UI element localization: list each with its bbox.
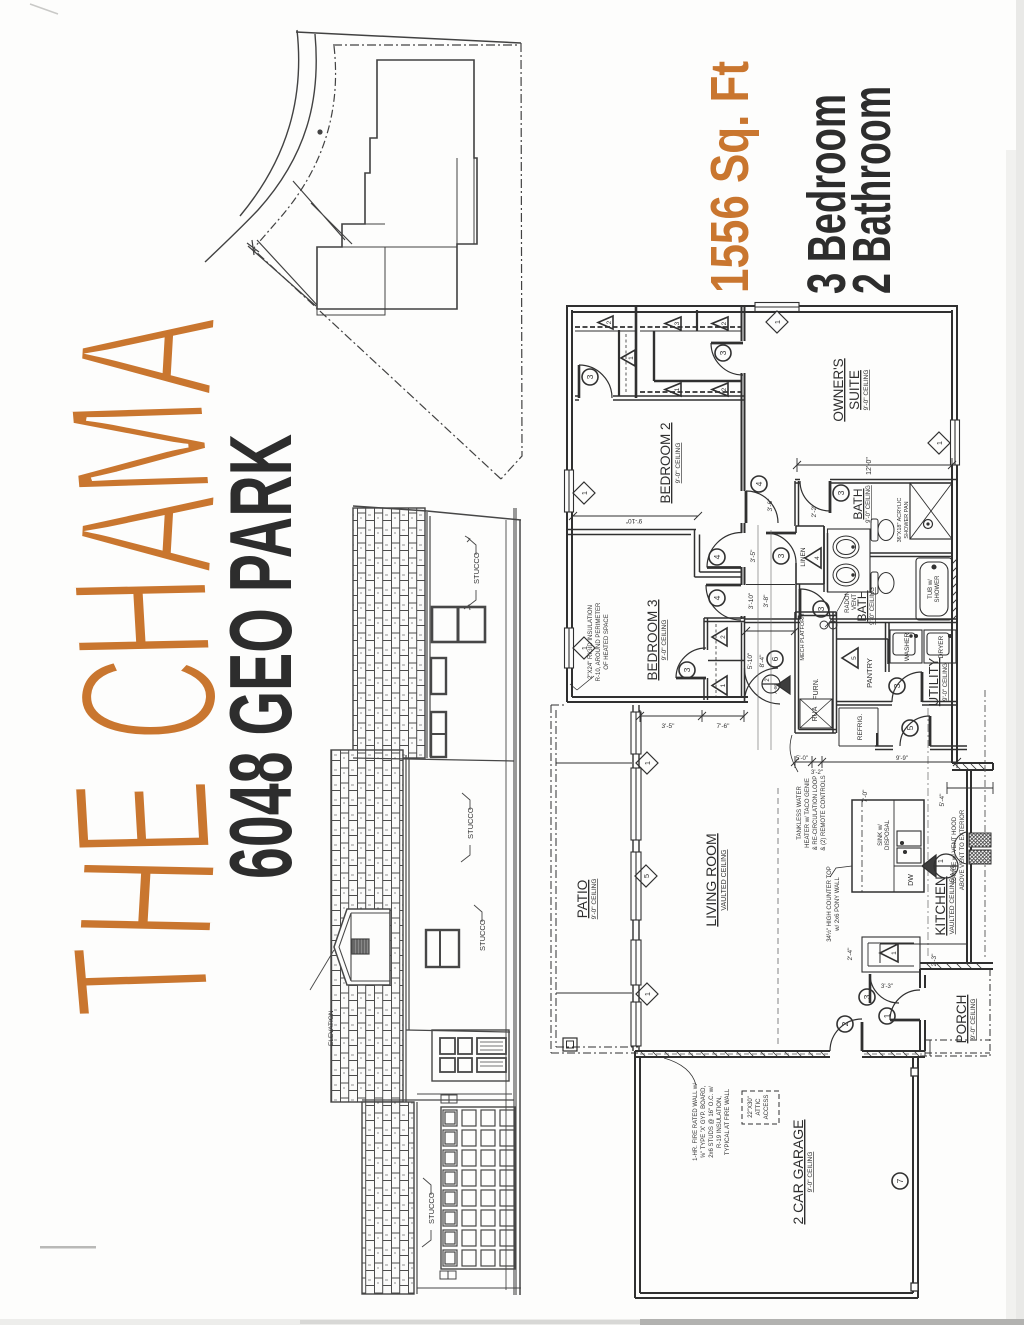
svg-text:ATTIC: ATTIC <box>756 1098 762 1116</box>
svg-text:34½" HIGH COUNTER TOP: 34½" HIGH COUNTER TOP <box>826 866 833 942</box>
svg-text:LIVING ROOM: LIVING ROOM <box>703 833 719 926</box>
svg-text:3'-5": 3'-5" <box>750 549 757 563</box>
svg-text:UTILITY: UTILITY <box>926 657 941 706</box>
svg-text:6048 GEO PARK: 6048 GEO PARK <box>211 434 310 879</box>
svg-text:12'-0": 12'-0" <box>866 457 873 475</box>
svg-text:2'-3": 2'-3" <box>931 953 938 967</box>
svg-text:PORCH: PORCH <box>954 995 969 1044</box>
svg-text:DW: DW <box>908 874 915 886</box>
svg-text:OF HEATED SPACE: OF HEATED SPACE <box>604 614 610 669</box>
svg-text:9'-0" CEILING: 9'-0" CEILING <box>863 370 870 411</box>
svg-text:STUCCO: STUCCO <box>466 807 475 839</box>
svg-text:9'-0" CEILING: 9'-0" CEILING <box>866 485 872 523</box>
svg-text:8'-4": 8'-4" <box>759 654 766 668</box>
svg-text:TUB w/: TUB w/ <box>928 579 934 599</box>
svg-text:2: 2 <box>606 320 613 324</box>
svg-text:5: 5 <box>851 656 858 660</box>
svg-text:PATIO: PATIO <box>575 880 590 919</box>
svg-text:3: 3 <box>816 606 826 611</box>
svg-text:KITCHEN: KITCHEN <box>933 876 948 935</box>
svg-text:2'-2": 2'-2" <box>811 504 818 518</box>
svg-text:9'-0" CEILING: 9'-0" CEILING <box>807 1152 814 1193</box>
svg-text:2 CAR GARAGE: 2 CAR GARAGE <box>790 1119 806 1224</box>
svg-text:9'-0" CEILING: 9'-0" CEILING <box>970 999 977 1040</box>
svg-text:3: 3 <box>836 490 846 495</box>
svg-text:2'-4": 2'-4" <box>847 947 854 961</box>
svg-text:STUCCO: STUCCO <box>478 919 487 951</box>
svg-text:BEDROOM 2: BEDROOM 2 <box>658 422 673 503</box>
svg-text:HEATER w/ TACO GENIE: HEATER w/ TACO GENIE <box>805 778 811 848</box>
svg-text:9'-9": 9'-9" <box>896 756 908 762</box>
svg-text:R-10, AROUND PERIMETER: R-10, AROUND PERIMETER <box>596 602 602 681</box>
svg-text:9'-10": 9'-10" <box>625 517 642 524</box>
svg-text:2"X24" RIGID INSULATION: 2"X24" RIGID INSULATION <box>588 605 594 679</box>
svg-text:REFRIG.: REFRIG. <box>857 714 864 741</box>
svg-text:1556 Sq. Ft: 1556 Sq. Ft <box>700 61 760 293</box>
svg-text:VAULTED CEILING: VAULTED CEILING <box>721 849 728 910</box>
svg-text:3'-8": 3'-8" <box>763 594 770 608</box>
svg-text:1-HR. FIRE RATED WALL w/: 1-HR. FIRE RATED WALL w/ <box>693 1083 699 1161</box>
svg-text:FURN.: FURN. <box>813 678 820 699</box>
svg-text:ACCESS: ACCESS <box>764 1095 770 1120</box>
svg-text:VENT: VENT <box>852 594 858 610</box>
svg-text:4: 4 <box>814 556 821 560</box>
svg-text:R-19 INSULATION,: R-19 INSULATION, <box>717 1096 723 1148</box>
svg-text:5'-10": 5'-10" <box>747 652 754 669</box>
svg-text:4: 4 <box>712 595 722 600</box>
svg-text:9'-0" CEILING: 9'-0" CEILING <box>661 620 668 661</box>
svg-text:3: 3 <box>674 321 681 325</box>
svg-text:3'-5": 3'-5" <box>662 723 676 730</box>
svg-text:RANGE w/ VENT HOOD: RANGE w/ VENT HOOD <box>952 816 958 883</box>
svg-text:7: 7 <box>895 1178 905 1183</box>
svg-text:& (2) REMOTE CONTROLS: & (2) REMOTE CONTROLS <box>821 775 827 850</box>
svg-text:DISPOSAL: DISPOSAL <box>885 819 891 850</box>
svg-text:4: 4 <box>754 481 764 486</box>
svg-text:3: 3 <box>862 994 872 999</box>
svg-text:3'-6": 3'-6" <box>767 498 774 512</box>
svg-text:TYPICAL AT FIRE WALL: TYPICAL AT FIRE WALL <box>725 1088 731 1155</box>
svg-text:1: 1 <box>643 992 652 996</box>
svg-text:4: 4 <box>712 554 722 559</box>
svg-text:ELEVATION: ELEVATION <box>328 1010 335 1046</box>
svg-text:BATH: BATH <box>851 488 865 519</box>
svg-text:1: 1 <box>720 683 727 687</box>
svg-text:1: 1 <box>938 859 945 863</box>
svg-text:22"X30": 22"X30" <box>748 1096 754 1118</box>
svg-text:2x6 STUDS @ 16" O.C. w/: 2x6 STUDS @ 16" O.C. w/ <box>709 1086 715 1158</box>
svg-text:1: 1 <box>628 356 635 360</box>
svg-text:5'-4": 5'-4" <box>939 793 946 807</box>
svg-text:SINK w/: SINK w/ <box>878 824 884 846</box>
svg-text:1: 1 <box>674 387 681 391</box>
svg-text:9'-0" CEILING: 9'-0" CEILING <box>675 443 682 484</box>
svg-text:3: 3 <box>776 553 786 558</box>
svg-text:SUITE: SUITE <box>847 370 862 410</box>
svg-text:BEDROOM 3: BEDROOM 3 <box>645 599 660 680</box>
svg-text:5: 5 <box>642 874 651 878</box>
svg-text:1: 1 <box>891 951 898 955</box>
svg-text:STUCCO: STUCCO <box>427 1192 436 1224</box>
svg-text:5: 5 <box>905 725 915 730</box>
svg-text:A-06: A-06 <box>773 684 778 694</box>
svg-text:w/ 2x6 PONY WALL: w/ 2x6 PONY WALL <box>835 876 841 931</box>
svg-text:OWNER'S: OWNER'S <box>831 358 846 421</box>
svg-text:2: 2 <box>840 1021 850 1026</box>
svg-text:3'-2": 3'-2" <box>811 770 823 776</box>
svg-text:STUCCO: STUCCO <box>472 552 481 584</box>
svg-text:3'-10": 3'-10" <box>748 592 755 609</box>
svg-text:& RE-CIRCULATION LOOP: & RE-CIRCULATION LOOP <box>813 776 819 851</box>
svg-text:1: 1 <box>773 320 782 324</box>
svg-text:1: 1 <box>643 761 652 765</box>
svg-text:SHOWER: SHOWER <box>935 575 941 603</box>
svg-text:9'-0" CEILING: 9'-0" CEILING <box>591 879 598 920</box>
svg-text:2: 2 <box>721 387 728 391</box>
svg-text:1: 1 <box>882 1013 892 1018</box>
svg-text:1: 1 <box>935 441 944 445</box>
svg-text:2: 2 <box>720 635 727 639</box>
svg-text:3: 3 <box>682 667 692 672</box>
svg-text:3: 3 <box>718 350 728 355</box>
svg-text:3: 3 <box>892 683 902 688</box>
svg-text:SHOWER PAN: SHOWER PAN <box>904 501 910 538</box>
svg-text:2: 2 <box>721 321 728 325</box>
svg-text:6: 6 <box>770 656 780 661</box>
svg-text:TANKLESS WATER: TANKLESS WATER <box>797 786 803 840</box>
svg-text:1: 1 <box>580 491 589 495</box>
svg-text:5'-0": 5'-0" <box>796 756 808 762</box>
svg-text:9'-0" CEILING: 9'-0" CEILING <box>943 663 949 701</box>
svg-text:VAULTED CEILING: VAULTED CEILING <box>949 878 956 935</box>
svg-text:PANTRY: PANTRY <box>865 658 874 688</box>
svg-text:ABOVE VENT TO EXTERIOR: ABOVE VENT TO EXTERIOR <box>960 809 966 890</box>
svg-text:7'-6": 7'-6" <box>717 723 731 730</box>
svg-text:3: 3 <box>585 374 595 379</box>
svg-text:MECH PLATFORM: MECH PLATFORM <box>800 613 806 661</box>
svg-text:3'-3": 3'-3" <box>881 984 893 990</box>
svg-text:2 Bathroom: 2 Bathroom <box>842 86 902 294</box>
svg-text:7'-0": 7'-0" <box>862 789 869 803</box>
svg-text:36"X18" ACRYLIC: 36"X18" ACRYLIC <box>897 498 903 543</box>
svg-text:⅝" TYPE 'X' GYP. BOARD,: ⅝" TYPE 'X' GYP. BOARD, <box>701 1086 707 1159</box>
